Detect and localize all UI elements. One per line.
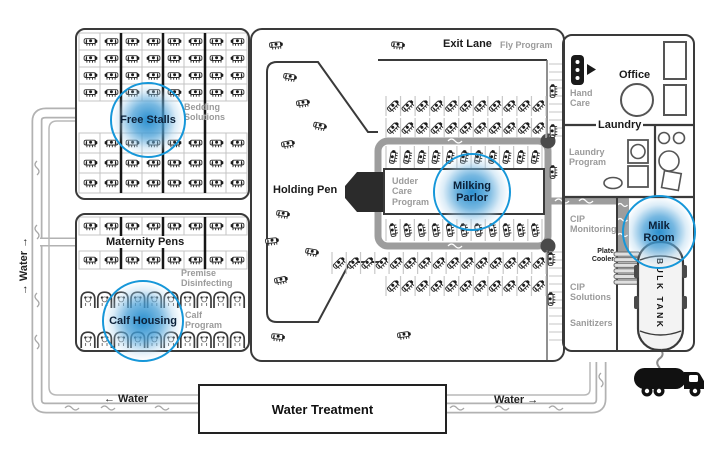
fly-program-label: Fly Program [500, 40, 553, 50]
hotspot-free-stalls[interactable]: Free Stalls [110, 82, 186, 158]
hotspot-milking-parlor[interactable]: Milking Parlor [433, 153, 511, 231]
premise-disinfecting-label: Premise Disinfecting [181, 268, 243, 289]
holding-pen-label: Holding Pen [273, 184, 337, 196]
water-flow-label-vertical: → Water → [18, 211, 30, 321]
sanitizers-label: Sanitizers [570, 318, 630, 328]
office-label: Office [619, 69, 650, 81]
free-stalls-label: Free Stalls [113, 114, 183, 126]
cip-monitoring-label: CIP Monitoring [570, 214, 622, 235]
water-flow-label-left: ← Water [104, 393, 148, 405]
hotspot-milk-room[interactable]: Milk Room [622, 195, 696, 269]
plate-cooler-label: Plate Cooler [582, 248, 614, 263]
calf-housing-label: Calf Housing [104, 315, 182, 327]
laundry-program-label: Laundry Program [569, 147, 619, 168]
water-flow-label-right: Water → [494, 394, 538, 406]
hand-care-label: Hand Care [570, 88, 600, 109]
calf-program-label: Calf Program [185, 310, 233, 331]
farm-layout-diagram: Exit Lane Fly Program Office Hand Care L… [0, 0, 720, 465]
maternity-pens-label: Maternity Pens [104, 236, 186, 248]
milk-room-label: Milk Room [640, 220, 678, 244]
bedding-solutions-label: Bedding Solutions [184, 102, 236, 123]
cip-solutions-label: CIP Solutions [570, 282, 616, 303]
milk-truck [634, 368, 704, 397]
udder-care-label: Udder Care Program [392, 176, 432, 207]
exit-lane-label: Exit Lane [443, 38, 492, 50]
service-building [562, 34, 695, 352]
hotspot-calf-housing[interactable]: Calf Housing [102, 280, 184, 362]
water-treatment-box: Water Treatment [198, 384, 447, 434]
milking-parlor-label: Milking Parlor [447, 180, 497, 204]
laundry-label: Laundry [596, 119, 643, 131]
water-treatment-label: Water Treatment [272, 402, 373, 417]
milk-hose [657, 350, 662, 368]
